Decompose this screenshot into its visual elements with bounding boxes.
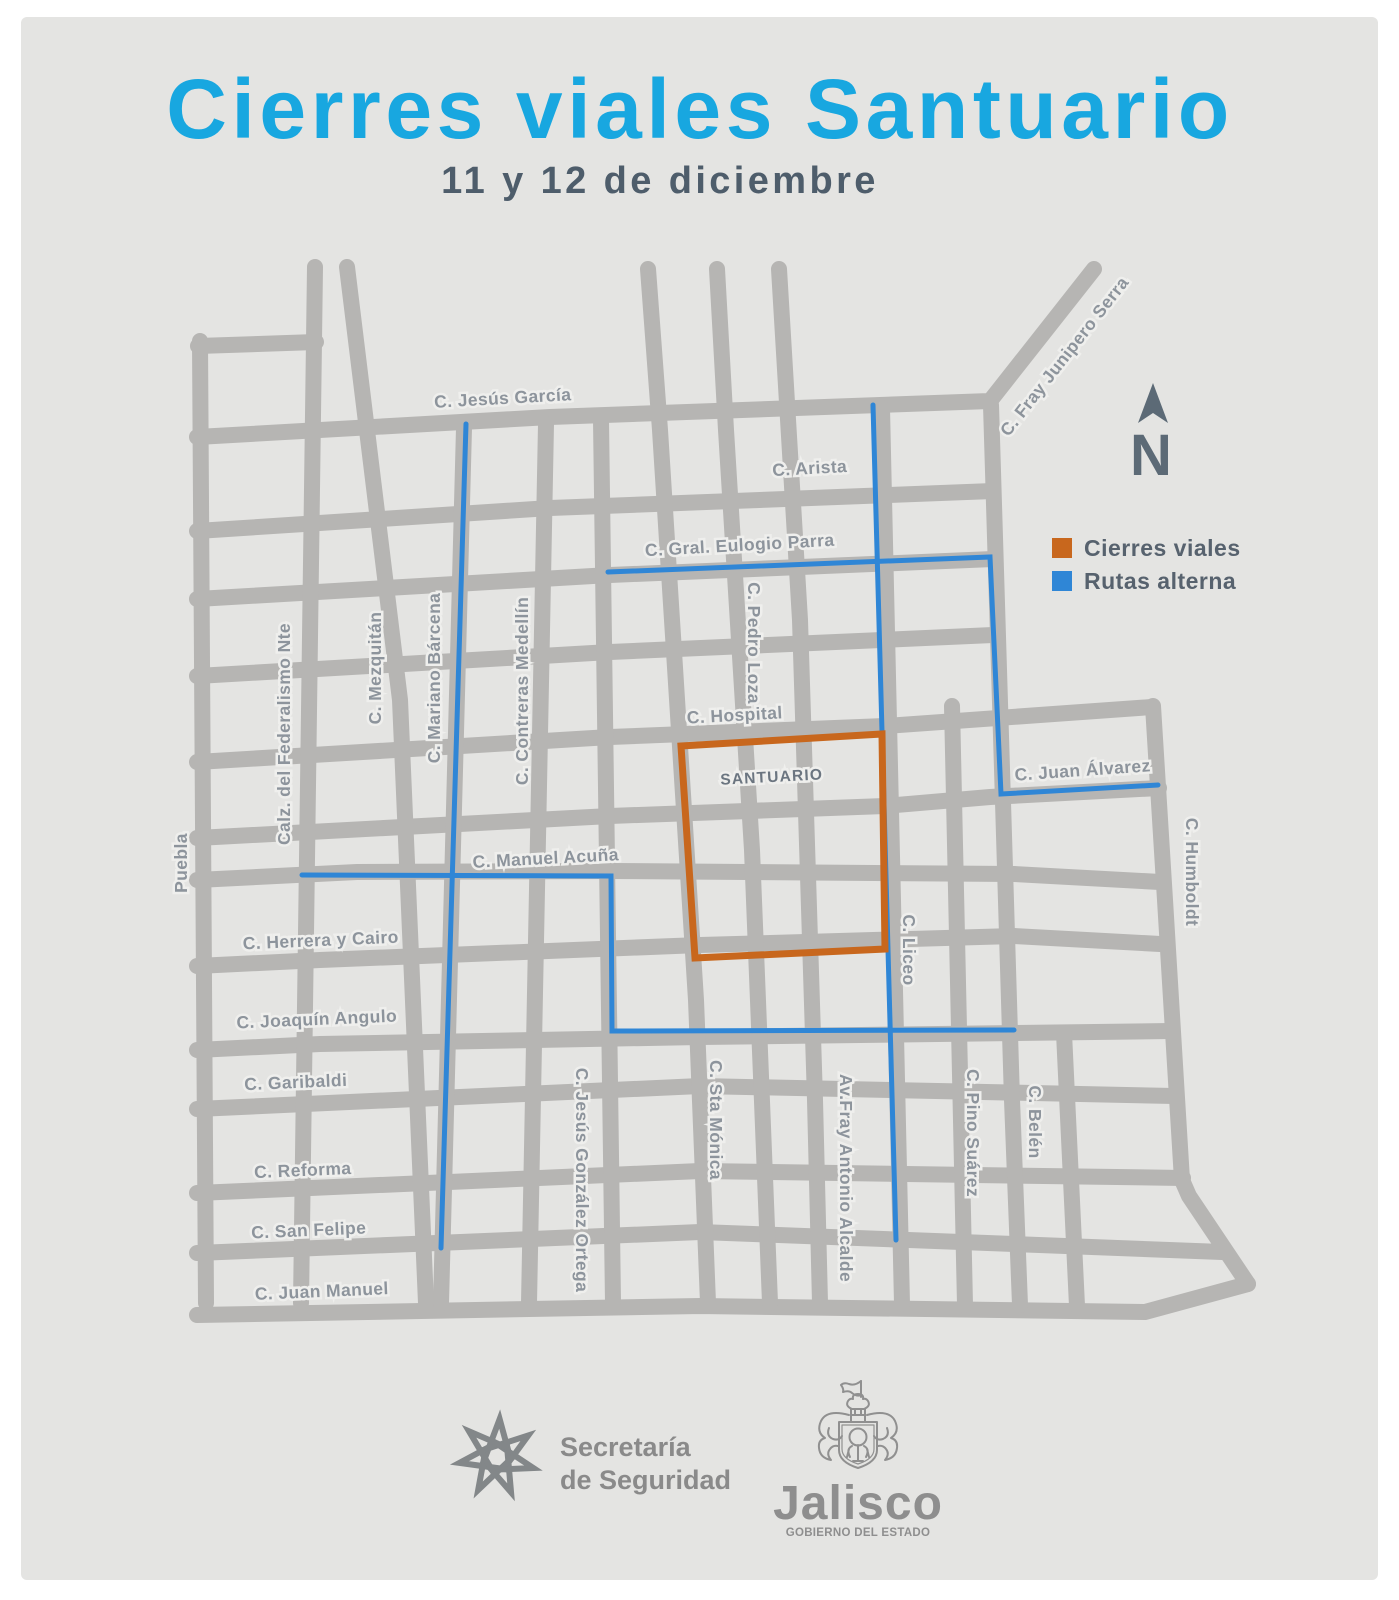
svg-text:C. Mariano Bárcena: C. Mariano Bárcena [424, 593, 444, 764]
svg-text:Calz. del Federalismo Nte: Calz. del Federalismo Nte [274, 623, 294, 845]
svg-text:Secretaría: Secretaría [560, 1432, 692, 1462]
svg-text:GOBIERNO DEL ESTADO: GOBIERNO DEL ESTADO [786, 1527, 931, 1539]
svg-text:Puebla: Puebla [171, 833, 191, 893]
svg-text:C. Pedro Loza: C. Pedro Loza [744, 582, 764, 704]
svg-text:Av.Fray Antonio Alcalde: Av.Fray Antonio Alcalde [836, 1074, 856, 1282]
svg-text:C. Humboldt: C. Humboldt [1182, 818, 1202, 926]
svg-text:C. Arista: C. Arista [772, 456, 848, 480]
svg-text:Jalisco: Jalisco [773, 1477, 943, 1530]
svg-text:C. Pino Suárez: C. Pino Suárez [963, 1069, 983, 1197]
svg-text:Cierres viales Santuario: Cierres viales Santuario [166, 62, 1234, 156]
svg-text:N: N [1130, 423, 1172, 488]
svg-text:C. Reforma: C. Reforma [254, 1158, 352, 1182]
svg-text:C. Jesús González Ortega: C. Jesús González Ortega [572, 1068, 592, 1293]
svg-text:Rutas alterna: Rutas alterna [1084, 568, 1236, 594]
svg-text:C. Mezquitán: C. Mezquitán [365, 612, 385, 725]
svg-text:C. Contreras Medellín: C. Contreras Medellín [512, 597, 532, 785]
svg-text:C. Liceo: C. Liceo [899, 914, 919, 985]
svg-text:Cierres viales: Cierres viales [1084, 535, 1241, 561]
svg-text:C. Belén: C. Belén [1025, 1085, 1045, 1158]
svg-text:11 y 12 de diciembre: 11 y 12 de diciembre [441, 160, 879, 202]
svg-text:C. Sta Mónica: C. Sta Mónica [706, 1060, 726, 1180]
svg-text:de Seguridad: de Seguridad [560, 1465, 731, 1495]
